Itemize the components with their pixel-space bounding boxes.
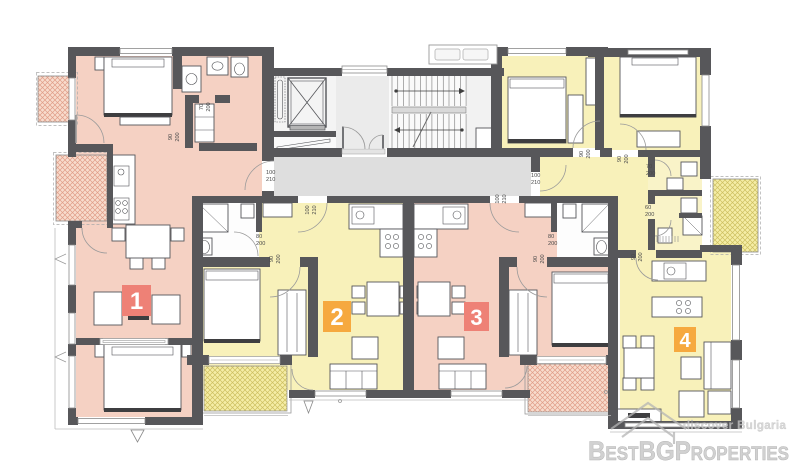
svg-text:90: 90 [631, 254, 637, 260]
svg-text:200: 200 [256, 241, 265, 247]
svg-text:210: 210 [531, 180, 540, 186]
svg-text:200: 200 [646, 171, 655, 177]
svg-text:70: 70 [646, 164, 652, 170]
svg-text:90: 90 [168, 134, 174, 140]
svg-text:200: 200 [645, 212, 654, 218]
svg-text:200: 200 [624, 154, 630, 163]
svg-text:210: 210 [312, 205, 318, 214]
svg-text:BestBGProperties: BestBGProperties [588, 436, 789, 466]
svg-text:70: 70 [199, 104, 205, 110]
svg-text:200: 200 [548, 241, 557, 247]
svg-text:1: 1 [130, 288, 143, 315]
svg-text:200: 200 [586, 149, 592, 158]
svg-text:100: 100 [266, 170, 275, 176]
svg-text:210: 210 [502, 194, 508, 203]
svg-text:60: 60 [645, 205, 651, 211]
svg-text:4: 4 [679, 330, 691, 352]
svg-text:200: 200 [175, 132, 181, 141]
svg-text:3: 3 [470, 305, 482, 330]
svg-text:200: 200 [540, 254, 546, 263]
svg-text:100: 100 [305, 205, 311, 214]
svg-text:200: 200 [276, 254, 282, 263]
svg-text:90: 90 [269, 256, 275, 262]
svg-text:2: 2 [330, 304, 343, 331]
svg-text:80: 80 [256, 234, 262, 240]
svg-text:90: 90 [533, 256, 539, 262]
svg-text:90: 90 [579, 151, 585, 157]
svg-text:200: 200 [638, 252, 644, 261]
svg-text:80: 80 [548, 234, 554, 240]
svg-text:100: 100 [531, 173, 540, 179]
svg-text:100: 100 [495, 194, 501, 203]
svg-text:discover Bulgaria: discover Bulgaria [683, 420, 787, 432]
svg-text:200: 200 [206, 102, 212, 111]
svg-text:210: 210 [266, 177, 275, 183]
svg-text:90: 90 [617, 156, 623, 162]
